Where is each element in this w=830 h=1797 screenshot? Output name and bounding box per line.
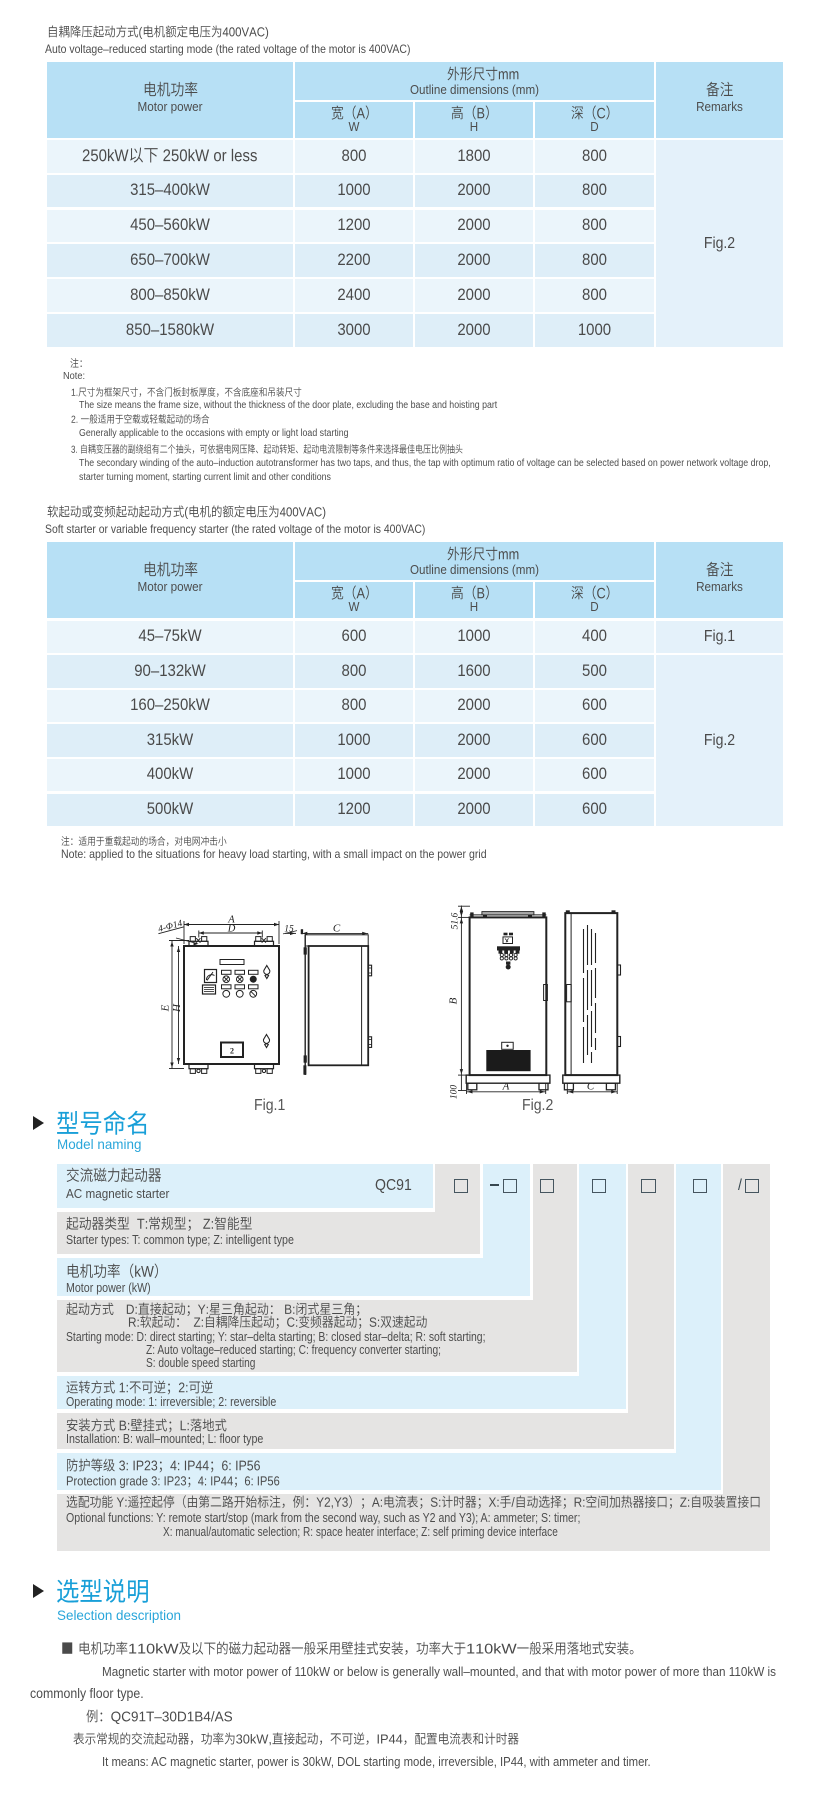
- svg-text:4-Φ14: 4-Φ14: [157, 919, 184, 935]
- svg-text:2: 2: [230, 1047, 234, 1056]
- svg-text:C: C: [587, 1081, 595, 1093]
- svg-text:H: H: [171, 1003, 183, 1013]
- svg-text:B: B: [448, 997, 460, 1004]
- svg-text:E: E: [160, 1004, 172, 1012]
- svg-text:51.6: 51.6: [451, 912, 461, 929]
- svg-text:D: D: [227, 924, 236, 935]
- svg-text:A: A: [502, 1081, 510, 1093]
- svg-text:100: 100: [450, 1085, 460, 1100]
- svg-text:C: C: [333, 923, 341, 935]
